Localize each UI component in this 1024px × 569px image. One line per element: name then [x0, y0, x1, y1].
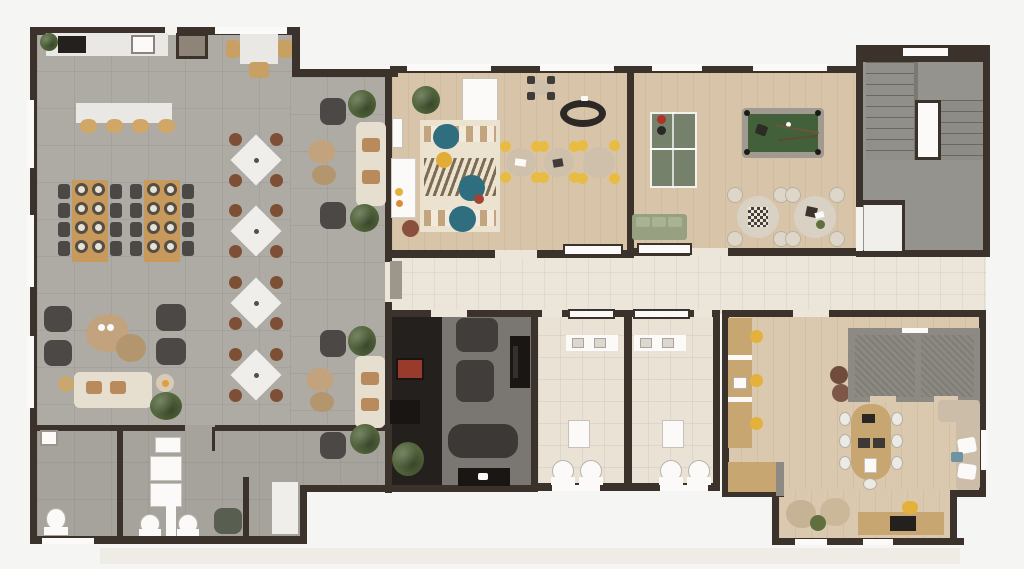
window-washroom-right	[633, 309, 690, 319]
dining-chair	[58, 184, 70, 199]
east-plant	[350, 424, 380, 454]
place-setting	[92, 221, 105, 234]
desk-chair	[902, 501, 918, 514]
place-setting	[164, 221, 177, 234]
place-setting	[92, 202, 105, 215]
coffee-tray	[107, 324, 114, 331]
pod-carpet-1	[855, 335, 915, 397]
east-armchair	[320, 330, 346, 357]
kids-table	[583, 147, 615, 178]
banquette-cushion	[668, 217, 682, 227]
window-playroom-north-1	[407, 64, 491, 71]
pod-door	[870, 396, 896, 402]
lounge-armchair	[44, 306, 72, 332]
meeting-chair	[891, 434, 903, 448]
place-setting	[147, 183, 160, 196]
game-plant	[816, 220, 825, 229]
place-setting	[75, 221, 88, 234]
cinema-credenza	[390, 400, 420, 424]
service-sink	[40, 430, 58, 446]
entry-chair-east	[278, 40, 292, 58]
window-games-north-2	[753, 64, 827, 71]
booth-stool	[750, 330, 763, 343]
basin	[594, 338, 606, 348]
stair-flight-east	[938, 100, 983, 160]
cafe-chair	[229, 389, 242, 402]
pingpong-center-line	[672, 112, 674, 188]
dining-chair	[110, 184, 122, 199]
craft-item	[395, 188, 403, 196]
game-chair	[727, 187, 743, 203]
banquette-cushion	[636, 217, 650, 227]
place-setting	[147, 221, 160, 234]
kids-chair	[538, 172, 549, 183]
dining-chair	[58, 241, 70, 256]
race-track	[560, 100, 606, 127]
lounge-armchair	[156, 304, 186, 331]
kids-game	[515, 158, 527, 166]
wall-cinema-east	[531, 310, 538, 492]
cinema-recliner	[456, 360, 494, 402]
door-office	[793, 310, 829, 317]
window-bump-south-1	[795, 539, 827, 545]
table-center-dot	[254, 158, 259, 163]
bar-stool-4	[158, 119, 175, 133]
wall-stair-south	[856, 250, 990, 257]
booth-monitor	[733, 377, 747, 389]
dining-chair	[182, 203, 194, 218]
table-center-dot	[254, 301, 259, 306]
activity-chair	[547, 76, 555, 84]
dining-chair	[130, 203, 142, 218]
washroom-shelf	[662, 420, 684, 448]
kids-chair	[577, 173, 588, 184]
east-pouf	[310, 392, 334, 412]
toilet-tank	[687, 477, 711, 485]
cafe-chair	[270, 245, 283, 258]
booth-divider	[728, 397, 752, 402]
desk-monitor	[890, 516, 916, 531]
cinema-plant	[392, 442, 424, 476]
east-plant	[348, 90, 376, 118]
cafe-chair	[229, 174, 242, 187]
cafe-chair	[229, 204, 242, 217]
sofa-pillow	[957, 463, 977, 480]
sofa-cushion	[361, 398, 379, 411]
cafe-chair	[270, 133, 283, 146]
kids-chair	[609, 140, 620, 151]
booth-stool	[750, 417, 763, 430]
game-chair	[829, 231, 845, 247]
kids-chair	[609, 173, 620, 184]
wall-south-mid	[300, 485, 392, 492]
dining-chair	[110, 203, 122, 218]
play-pouf-brown	[402, 220, 419, 237]
window-washroom-south-2	[660, 485, 708, 491]
stair-void	[915, 100, 941, 160]
service-daybed	[272, 482, 298, 534]
floor-plan	[0, 0, 1024, 569]
office-counter	[728, 462, 778, 492]
dining-chair	[130, 184, 142, 199]
wall-bump-east	[950, 490, 957, 545]
wall-washroom-divider	[624, 310, 632, 490]
window-west-3	[27, 336, 34, 408]
pingpong-paddle-black	[657, 126, 666, 135]
play-pouf-yellow	[436, 152, 452, 168]
dining-chair	[58, 203, 70, 218]
table-center-dot	[254, 373, 259, 378]
washroom-shelf	[568, 420, 590, 448]
place-setting	[75, 240, 88, 253]
game-chair	[785, 231, 801, 247]
place-setting	[164, 202, 177, 215]
dining-chair	[130, 241, 142, 256]
cinema-recliner	[456, 318, 498, 352]
wall-step-southwest	[300, 485, 307, 544]
east-sofa-2	[355, 356, 385, 428]
entry-chair-west	[226, 40, 240, 58]
office-pouf	[830, 366, 848, 384]
basin	[572, 338, 584, 348]
wall-service-divider-2	[243, 477, 249, 536]
door-stairwell	[856, 207, 863, 251]
east-armchair	[320, 432, 346, 459]
cinema-controller	[478, 473, 488, 480]
window-stair-north	[903, 48, 948, 56]
dining-chair	[110, 222, 122, 237]
place-setting	[92, 183, 105, 196]
dining-chair	[182, 222, 194, 237]
meeting-chair	[839, 456, 851, 470]
wall-washroom-east	[713, 310, 720, 491]
stall-partition	[166, 506, 176, 536]
pool-pocket	[744, 110, 750, 116]
door-leaf-service	[212, 427, 215, 451]
pool-pocket	[815, 149, 821, 155]
kids-chair	[500, 141, 511, 152]
kitchen-plant	[40, 33, 58, 51]
pingpong-paddle-red	[657, 115, 666, 124]
locker-unit	[150, 483, 182, 507]
floor-corridor	[390, 250, 986, 314]
entry-chair-south	[249, 62, 269, 78]
window-washroom-south-1	[552, 485, 600, 491]
cafe-chair	[229, 245, 242, 258]
door-washroom-right	[694, 310, 712, 317]
door-service	[185, 425, 215, 431]
place-setting	[164, 183, 177, 196]
locker-unit	[150, 456, 182, 481]
basin	[662, 338, 674, 348]
activity-chair	[527, 76, 535, 84]
coffee-tray	[98, 324, 105, 331]
wall-office-north	[725, 310, 986, 317]
window-playroom-corridor	[563, 244, 623, 256]
corridor-mat	[390, 261, 402, 299]
meeting-pad	[873, 438, 885, 448]
sofa-cushion	[362, 138, 380, 152]
toilet-tank	[659, 477, 683, 485]
window-washroom-left	[568, 309, 615, 319]
kids-chair	[500, 172, 511, 183]
east-pouf	[308, 140, 335, 163]
meeting-chair	[891, 412, 903, 426]
counter-end-stone	[776, 462, 784, 496]
service-toilet-tank	[44, 527, 68, 535]
wall-cinema-south	[385, 485, 538, 492]
meeting-laptop	[862, 414, 875, 423]
dining-chair	[182, 184, 194, 199]
pool-pocket	[815, 110, 821, 116]
locker-shelf	[155, 437, 181, 453]
race-car	[581, 96, 588, 101]
meeting-chair	[891, 456, 903, 470]
window-games-corridor	[637, 243, 692, 255]
window-games-north-1	[652, 64, 702, 71]
cafe-chair	[270, 276, 283, 289]
east-sofa-1	[356, 122, 386, 206]
window-west-2	[27, 215, 34, 287]
activity-chair	[547, 92, 555, 100]
pod-carpet-2	[921, 335, 974, 397]
play-shelf	[392, 118, 403, 148]
craft-item	[396, 200, 403, 207]
cafe-chair	[270, 174, 283, 187]
kitchen-cooktop	[58, 36, 86, 53]
wall-top-mid	[292, 69, 398, 77]
cafe-chair	[229, 133, 242, 146]
door-playroom	[495, 250, 537, 258]
booth-divider	[728, 355, 752, 360]
meeting-chair	[863, 478, 877, 490]
bar-stool-3	[132, 119, 149, 133]
door-cinema	[431, 310, 467, 317]
cinema-sofa	[448, 424, 518, 458]
window-south-west	[42, 538, 94, 544]
pod-window	[902, 328, 928, 333]
meeting-paper	[864, 458, 877, 473]
cafe-chair	[229, 317, 242, 330]
meeting-chair	[839, 434, 851, 448]
east-armchair	[320, 202, 346, 229]
window-playroom-north-2	[540, 64, 614, 71]
pool-pocket	[744, 149, 750, 155]
stair-lobby	[864, 205, 902, 251]
stall-toilet-tank	[139, 529, 161, 536]
east-armchair	[320, 98, 346, 125]
lounge-plant	[150, 392, 182, 420]
game-chair	[727, 231, 743, 247]
beanbag	[433, 124, 459, 149]
kids-game	[552, 158, 563, 168]
cafe-chair	[270, 389, 283, 402]
cafe-chair	[270, 348, 283, 361]
booth-stool	[750, 374, 763, 387]
cinema-tv-screen	[513, 346, 518, 378]
dining-chair	[182, 241, 194, 256]
door-games-room	[690, 248, 728, 256]
kitchen-sink	[131, 35, 155, 54]
kids-chair	[577, 140, 588, 151]
activity-chair	[527, 92, 535, 100]
banquette-cushion	[652, 217, 666, 227]
east-pouf	[306, 368, 333, 391]
cafe-chair	[270, 204, 283, 217]
play-pouf-red	[474, 194, 484, 204]
east-pouf	[312, 165, 336, 185]
cafe-chair	[229, 348, 242, 361]
toilet-tank	[551, 477, 575, 485]
game-chair	[785, 187, 801, 203]
meeting-chair	[839, 412, 851, 426]
place-setting	[147, 202, 160, 215]
side-table	[58, 376, 74, 392]
place-setting	[75, 183, 88, 196]
meeting-pad	[858, 438, 870, 448]
window-office-east	[981, 430, 987, 470]
sofa-cushion	[362, 170, 380, 184]
service-armchair	[214, 508, 242, 534]
lounge-armchair	[156, 338, 186, 365]
window-west-1	[27, 100, 34, 168]
wall-service-divider-1	[117, 431, 123, 536]
play-cabinet	[462, 78, 498, 126]
entry-storage	[176, 33, 208, 59]
cinema-poster	[396, 358, 424, 380]
terrace-strip	[100, 548, 960, 564]
wall-bump-west	[772, 490, 779, 545]
stall-toilet-tank	[177, 529, 199, 536]
cafe-chair	[270, 317, 283, 330]
east-plant	[350, 204, 379, 232]
checkerboard	[748, 207, 768, 227]
game-chair	[829, 187, 845, 203]
entry-table	[240, 34, 278, 64]
lounge-pouf-green	[810, 515, 826, 531]
bar-stool-1	[80, 119, 97, 133]
place-setting	[147, 240, 160, 253]
basin	[640, 338, 652, 348]
cafe-chair	[229, 276, 242, 289]
east-plant	[348, 326, 376, 356]
kids-chair	[538, 141, 549, 152]
place-setting	[75, 202, 88, 215]
dining-chair	[130, 222, 142, 237]
dining-chair	[110, 241, 122, 256]
floor-lamp-bulb	[162, 380, 169, 387]
sofa-tray	[951, 452, 963, 462]
window-bump-south-2	[863, 539, 893, 545]
place-setting	[164, 240, 177, 253]
sofa-cushion	[86, 381, 102, 394]
window-north-entry	[215, 27, 287, 34]
door-washroom-left	[542, 310, 562, 317]
play-plant	[412, 86, 440, 114]
lounge-armchair	[44, 340, 72, 366]
sofa-cushion	[361, 372, 379, 385]
wall-stair-east	[983, 45, 990, 257]
craft-table	[391, 158, 416, 218]
sofa-cushion	[110, 381, 126, 394]
coffee-table-organic-2	[116, 334, 146, 362]
dining-chair	[58, 222, 70, 237]
place-setting	[92, 240, 105, 253]
table-center-dot	[254, 229, 259, 234]
toilet-tank	[579, 477, 603, 485]
bar-stool-2	[106, 119, 123, 133]
stair-flight-west	[866, 62, 914, 160]
beanbag	[449, 206, 476, 232]
